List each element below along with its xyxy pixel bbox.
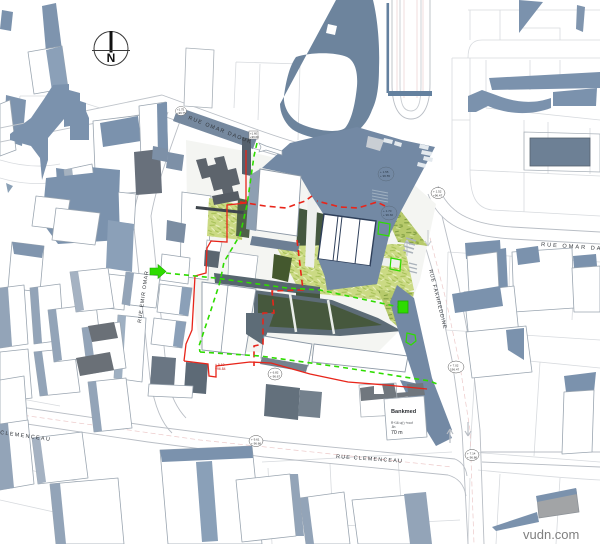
svg-text:+ 96.66: + 96.66 (383, 213, 393, 217)
svg-text:+ 96.67: + 96.67 (270, 375, 280, 379)
svg-text:+ 96.55: + 96.55 (380, 174, 390, 178)
svg-text:vudn.com: vudn.com (523, 527, 579, 542)
svg-text:+96.84: +96.84 (215, 367, 226, 371)
svg-text:+ 96.86: + 96.86 (467, 456, 477, 460)
svg-text:+96.75: +96.75 (177, 111, 186, 115)
svg-text:+96.60: +96.60 (250, 135, 259, 139)
svg-text:+ 96.66: + 96.66 (251, 442, 261, 446)
svg-text:N: N (107, 51, 116, 65)
svg-text:.8n: .8n (391, 425, 396, 429)
svg-text:196.47: 196.47 (450, 368, 460, 372)
svg-text:Bankmed: Bankmed (391, 409, 417, 415)
svg-text:70 m: 70 m (391, 430, 403, 436)
svg-text:+96.47: +96.47 (433, 194, 443, 198)
